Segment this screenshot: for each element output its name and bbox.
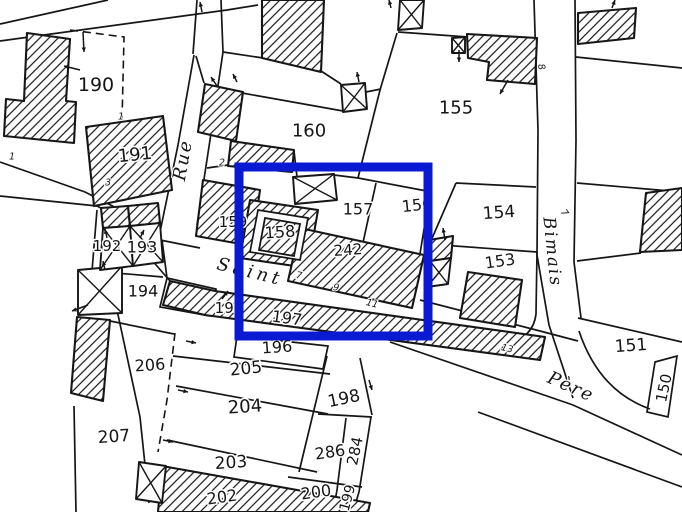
parcel-label-242: 242 — [333, 240, 363, 260]
crossed-building — [341, 83, 367, 112]
hatched-building — [101, 206, 130, 228]
hatched-building — [198, 84, 243, 141]
parcel-label-203: 203 — [214, 452, 248, 474]
parcel-label-204: 204 — [227, 395, 263, 418]
hatched-building — [429, 236, 453, 261]
parcel-label-155: 155 — [439, 98, 473, 119]
crossed-building — [136, 462, 166, 503]
hatched-building — [262, 0, 324, 72]
parcel-label-154: 154 — [482, 202, 516, 224]
parcel-label-206: 206 — [134, 354, 166, 375]
parcel-label-190: 190 — [78, 74, 114, 96]
parcel-label-193: 193 — [127, 238, 158, 257]
parcel-label-151: 151 — [614, 335, 648, 357]
parcel-label-157: 157 — [343, 200, 374, 219]
house-number: 2 — [219, 158, 225, 169]
house-number: 1 — [9, 152, 15, 163]
parcel-label-191: 191 — [117, 143, 153, 167]
parcel-label-205: 205 — [229, 357, 263, 380]
parcel-label-192: 192 — [93, 237, 122, 255]
house-number: 1 — [118, 112, 124, 123]
parcel-label-158: 158 — [264, 221, 296, 242]
crossed-building — [398, 0, 424, 30]
house-number: 3 — [105, 178, 111, 189]
crossed-building — [78, 266, 122, 315]
cadastral-map: 1901911921931941951961971981992002022032… — [0, 0, 682, 512]
crossed-building — [293, 174, 337, 204]
parcel-label-160: 160 — [292, 121, 326, 142]
parcel-label-194: 194 — [128, 282, 159, 301]
parcel-label-207: 207 — [97, 426, 131, 448]
map-canvas: 1901911921931941951961971981992002022032… — [0, 0, 682, 512]
hatched-building — [640, 188, 682, 252]
hatched-building — [460, 272, 522, 327]
hatched-building — [578, 8, 636, 44]
hatched-building — [71, 317, 110, 401]
